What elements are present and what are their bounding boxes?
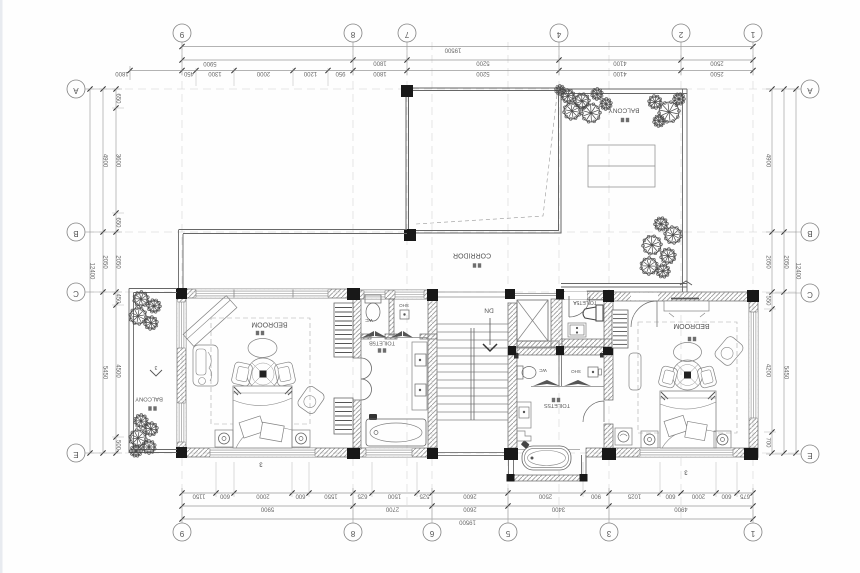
svg-text:625: 625 [357,493,368,499]
svg-text:B: B [73,229,78,238]
svg-text:12400: 12400 [795,263,801,280]
svg-text:5200: 5200 [476,60,490,66]
svg-text:4900: 4900 [674,506,688,512]
svg-text:8: 8 [350,529,355,538]
svg-text:950: 950 [335,70,346,76]
svg-text:4200: 4200 [764,364,770,378]
svg-text:2500: 2500 [710,70,724,76]
svg-text:E: E [73,450,78,459]
svg-text:7: 7 [404,30,409,39]
svg-text:TOILET5B: TOILET5B [369,340,395,346]
svg-text:4100: 4100 [613,70,627,76]
svg-text:450: 450 [183,70,194,76]
svg-text:1025: 1025 [627,493,641,499]
svg-text:C: C [73,289,79,298]
svg-text:600: 600 [721,493,732,499]
svg-text:1200: 1200 [303,70,317,76]
svg-text:650: 650 [114,93,120,104]
svg-text:CORRIDOR: CORRIDOR [453,252,491,259]
svg-text:600: 600 [295,493,306,499]
svg-text:2050: 2050 [101,255,107,269]
svg-text:2050: 2050 [783,255,789,269]
svg-text:1300: 1300 [208,70,222,76]
svg-text:5900: 5900 [260,506,274,512]
svg-text:DN: DN [484,306,494,313]
svg-text:5200: 5200 [476,70,490,76]
svg-text:2000: 2000 [256,493,270,499]
svg-text:E: E [807,451,812,460]
svg-text:19500: 19500 [458,519,475,525]
svg-text:4100: 4100 [613,60,627,66]
svg-text:WC: WC [539,368,547,373]
svg-text:SHO: SHO [571,369,581,374]
svg-text:2000: 2000 [691,493,705,499]
svg-text:2050: 2050 [114,255,120,269]
svg-text:5450: 5450 [101,366,107,380]
svg-text:B: B [807,229,812,238]
svg-text:A: A [807,86,813,95]
svg-text:TOILET5A: TOILET5A [573,299,597,305]
svg-text:SHO: SHO [399,303,409,308]
svg-text:3600: 3600 [114,154,120,168]
svg-text:2600: 2600 [463,506,477,512]
svg-text:9: 9 [179,529,184,538]
svg-text:1550: 1550 [324,493,338,499]
svg-text:550: 550 [764,295,770,306]
svg-text:9: 9 [179,30,184,39]
svg-text:4900: 4900 [101,154,107,168]
svg-text:3: 3 [154,364,157,370]
svg-text:2000: 2000 [256,70,270,76]
svg-text:3400: 3400 [551,506,565,512]
svg-text:450: 450 [114,293,120,304]
svg-text:5450: 5450 [783,366,789,380]
svg-text:C: C [807,290,813,299]
svg-text:2600: 2600 [463,493,477,499]
svg-text:525: 525 [419,493,430,499]
svg-text:TOILET5S: TOILET5S [544,402,570,408]
svg-text:1150: 1150 [192,493,206,499]
svg-text:BALCONY: BALCONY [608,106,640,113]
svg-text:4: 4 [556,30,561,39]
svg-text:BEDROOM: BEDROOM [251,321,287,328]
svg-text:4900: 4900 [764,154,770,168]
svg-text:5900: 5900 [203,60,217,66]
svg-text:900: 900 [590,493,601,499]
svg-text:2700: 2700 [385,506,399,512]
svg-text:3: 3 [606,529,611,538]
svg-text:8: 8 [350,30,355,39]
svg-text:1500: 1500 [387,493,401,499]
svg-text:2500: 2500 [710,60,724,66]
svg-text:WC: WC [365,318,373,323]
svg-text:A: A [73,86,79,95]
svg-text:5: 5 [505,529,510,538]
svg-text:1: 1 [750,529,755,538]
svg-text:19500: 19500 [444,47,461,53]
svg-text:2050: 2050 [764,255,770,269]
svg-text:1800: 1800 [373,60,387,66]
svg-text:4500: 4500 [114,364,120,378]
svg-text:700: 700 [764,437,770,448]
svg-text:500: 500 [114,440,120,451]
svg-text:600: 600 [665,493,676,499]
svg-text:675: 675 [739,493,750,499]
svg-text:6: 6 [429,529,434,538]
svg-text:2: 2 [678,30,683,39]
svg-text:650: 650 [114,217,120,228]
svg-text:1800: 1800 [373,70,387,76]
svg-text:2500: 2500 [538,493,552,499]
svg-text:BALCONY: BALCONY [135,396,163,402]
svg-text:1800: 1800 [115,70,129,76]
svg-text:BEDROOM: BEDROOM [673,322,709,329]
svg-text:1: 1 [750,30,755,39]
svg-text:12400: 12400 [88,263,94,280]
svg-text:600: 600 [219,493,230,499]
